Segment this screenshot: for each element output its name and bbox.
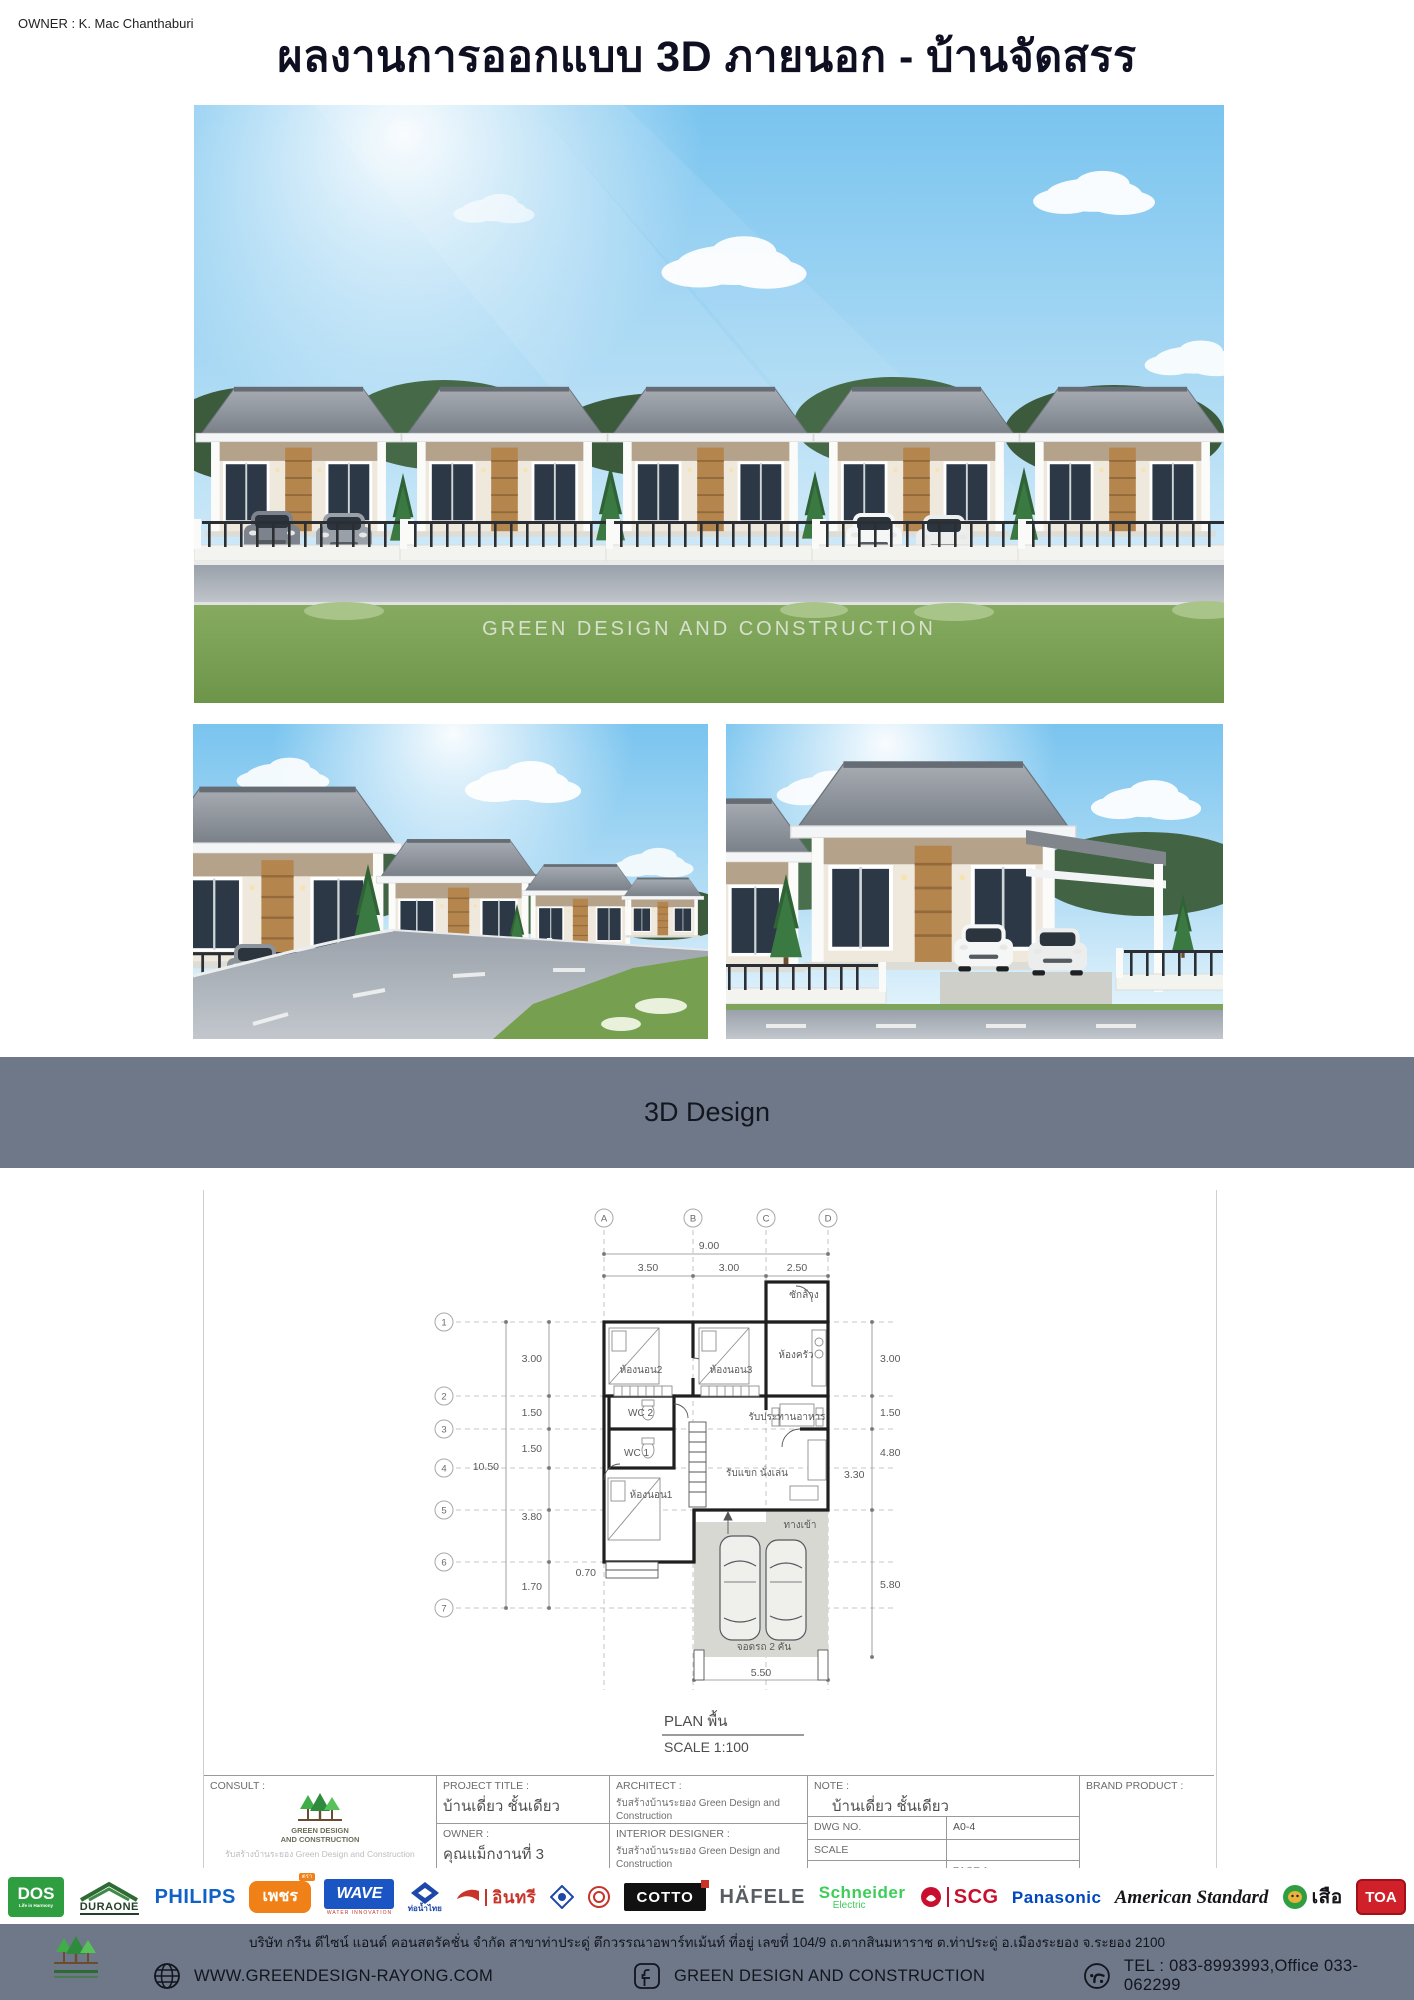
svg-text:ห้องนอน3: ห้องนอน3 — [710, 1364, 753, 1376]
logo-cotto-text: COTTO — [637, 1890, 694, 1905]
svg-text:3.30: 3.30 — [844, 1469, 865, 1481]
svg-text:5.50: 5.50 — [751, 1667, 772, 1679]
scale-label: SCALE — [814, 1844, 848, 1856]
architect-value: รับสร้างบ้านระยอง Green Design and Const… — [616, 1796, 801, 1822]
plan-scale-caption: SCALE 1:100 — [664, 1739, 749, 1755]
svg-text:1.50: 1.50 — [522, 1443, 543, 1455]
main-render-image: GREEN DESIGN AND CONSTRUCTION — [194, 105, 1224, 703]
project-title-cell: PROJECT TITLE : บ้านเดี่ยว ชั้นเดียว — [436, 1776, 609, 1823]
logo-suea: เสือ — [1282, 1884, 1343, 1910]
svg-text:1.50: 1.50 — [522, 1407, 543, 1419]
consult-cell: CONSULT : GREEN DESIGN AND CONSTRUCTION … — [204, 1776, 436, 1868]
svg-text:C: C — [763, 1214, 770, 1225]
logo-emblem-diamond — [550, 1885, 574, 1909]
logo-toa-text: TOA — [1365, 1890, 1396, 1905]
globe-icon — [152, 1961, 182, 1991]
logo-petch: ตรา เพชร — [249, 1881, 311, 1913]
note-value: บ้านเดี่ยว ชั้นเดียว — [832, 1794, 1073, 1818]
logo-text-line2: AND CONSTRUCTION — [210, 1835, 430, 1844]
note-label: NOTE : — [814, 1780, 849, 1792]
svg-text:3.00: 3.00 — [880, 1353, 901, 1365]
svg-text:รับประทานอาหาร: รับประทานอาหาร — [748, 1412, 826, 1423]
logo-emblem-circle — [587, 1885, 611, 1909]
footer-tel-text: TEL : 083-8993993,Office 033-062299 — [1124, 1957, 1414, 1995]
svg-text:ห้องครัว: ห้องครัว — [778, 1349, 813, 1361]
brand-logos-row: DOS Life in Harmony DURAONE PHILIPS ตรา … — [8, 1874, 1406, 1920]
logo-schneider-text: Schneider — [819, 1884, 906, 1901]
logo-dura-one: DURAONE — [77, 1880, 141, 1915]
svg-text:จอดรถ 2 คัน: จอดรถ 2 คัน — [737, 1642, 792, 1653]
logo-hafele-text: HÄFELE — [719, 1887, 805, 1907]
logo-petch-text: เพชร — [262, 1889, 297, 1905]
consult-label: CONSULT : — [210, 1780, 265, 1792]
logo-text-line1: GREEN DESIGN — [210, 1826, 430, 1835]
logo-scg-text: SCG — [947, 1887, 999, 1907]
note-cell: NOTE : บ้านเดี่ยว ชั้นเดียว — [807, 1776, 1079, 1816]
architect-cell: ARCHITECT : รับสร้างบ้านระยอง Green Desi… — [609, 1776, 807, 1823]
svg-text:3.80: 3.80 — [522, 1511, 543, 1523]
logo-subtext: รับสร้างบ้านระยอง Green Design and Const… — [210, 1847, 430, 1861]
insee-eagle-icon — [455, 1887, 481, 1907]
svg-text:ทางเข้า: ทางเข้า — [784, 1519, 817, 1531]
watermark-text: GREEN DESIGN AND CONSTRUCTION — [482, 618, 936, 640]
svg-text:1.50: 1.50 — [880, 1407, 901, 1419]
svg-text:ซักล้าง: ซักล้าง — [789, 1289, 819, 1301]
thai-pipe-diamond-icon — [410, 1881, 440, 1905]
footer-website-text: WWW.GREENDESIGN-RAYONG.COM — [194, 1967, 493, 1986]
brand-product-label: BRAND PRODUCT : — [1086, 1780, 1183, 1792]
dwg-label: DWG NO. — [814, 1821, 861, 1833]
svg-text:0.70: 0.70 — [576, 1567, 597, 1579]
banner-label: 3D Design — [0, 1057, 1414, 1168]
logo-panasonic-text: Panasonic — [1012, 1889, 1102, 1906]
footer: บริษัท กรีน ดีไซน์ แอนด์ คอนสตรัคชั่น จำ… — [0, 1924, 1414, 2000]
logo-dos: DOS Life in Harmony — [8, 1877, 64, 1917]
logo-suea-text: เสือ — [1312, 1888, 1343, 1907]
page-label-cell — [807, 1860, 946, 1868]
owner-cell: OWNER : คุณแม็กงานที่ 3 — [436, 1823, 609, 1868]
scale-label-cell: SCALE — [807, 1839, 946, 1860]
footer-facebook-text: GREEN DESIGN AND CONSTRUCTION — [674, 1967, 985, 1986]
footer-facebook[interactable]: GREEN DESIGN AND CONSTRUCTION — [632, 1958, 985, 1994]
svg-text:D: D — [825, 1214, 832, 1225]
logo-thai-pipe-text: ท่อน้ำไทย — [408, 1905, 442, 1913]
svg-text:5.80: 5.80 — [880, 1579, 901, 1591]
footer-website[interactable]: WWW.GREENDESIGN-RAYONG.COM — [152, 1958, 493, 1994]
scg-emblem-icon — [919, 1885, 943, 1909]
svg-text:3: 3 — [441, 1425, 446, 1436]
svg-text:5: 5 — [441, 1506, 446, 1517]
logo-philips-text: PHILIPS — [155, 1887, 236, 1907]
house-closeup-render — [726, 724, 1223, 1039]
svg-text:WC 1: WC 1 — [624, 1448, 649, 1459]
page-value-cell: PAGE 1 — [946, 1860, 1079, 1868]
logo-cotto: COTTO — [624, 1883, 706, 1911]
footer-phone[interactable]: TEL : 083-8993993,Office 033-062299 — [1082, 1958, 1414, 1994]
logo-dura-one-text: DURAONE — [80, 1902, 139, 1915]
logo-petch-sub: ตรา — [299, 1873, 316, 1881]
grid-column-bubbles: A B C D — [595, 1209, 837, 1227]
logo-insee: อินทรี — [455, 1887, 536, 1907]
interior-value: รับสร้างบ้านระยอง Green Design and Const… — [616, 1844, 801, 1868]
logo-philips: PHILIPS — [155, 1887, 236, 1907]
title-block: CONSULT : GREEN DESIGN AND CONSTRUCTION … — [204, 1775, 1214, 1868]
svg-text:ห้องนอน2: ห้องนอน2 — [620, 1364, 663, 1376]
tiger-emblem-icon — [1282, 1884, 1308, 1910]
floor-plan-sheet: A B C D 1 2 3 4 5 6 7 9.00 3.50 3.00 2.5… — [203, 1190, 1217, 1868]
svg-text:1: 1 — [441, 1318, 446, 1329]
interior-cell: INTERIOR DESIGNER : รับสร้างบ้านระยอง Gr… — [609, 1823, 807, 1868]
logo-american-standard-text: American Standard — [1115, 1888, 1269, 1907]
svg-text:4.80: 4.80 — [880, 1447, 901, 1459]
brand-product-cell: BRAND PRODUCT : — [1079, 1776, 1214, 1868]
svg-text:WC 2: WC 2 — [628, 1408, 653, 1419]
svg-text:4: 4 — [441, 1464, 446, 1475]
page-title: ผลงานการออกแบบ 3D ภายนอก - บ้านจัดสรร — [0, 22, 1414, 90]
company-tree-logo-icon — [294, 1793, 346, 1823]
logo-toa: TOA — [1356, 1879, 1406, 1915]
houses-street-illustration: GREEN DESIGN AND CONSTRUCTION — [194, 105, 1224, 703]
svg-text:7: 7 — [441, 1604, 446, 1615]
cotto-red-dot — [701, 1880, 709, 1888]
logo-insee-text: อินทรี — [485, 1889, 536, 1906]
project-title-label: PROJECT TITLE : — [443, 1780, 529, 1792]
logo-american-standard: American Standard — [1115, 1888, 1269, 1907]
street-perspective-render — [193, 724, 708, 1039]
circle-emblem-icon — [587, 1885, 611, 1909]
svg-text:1.70: 1.70 — [522, 1581, 543, 1593]
svg-text:9.00: 9.00 — [699, 1240, 720, 1252]
grid-row-bubbles: 1 2 3 4 5 6 7 — [435, 1313, 453, 1617]
dwg-value-cell: A0-4 — [946, 1816, 1079, 1839]
plan-caption: PLAN พื้น — [664, 1710, 728, 1730]
logo-dos-text: DOS — [18, 1885, 55, 1902]
section-banner: 3D Design — [0, 1057, 1414, 1168]
logo-schneider: Schneider Electric — [819, 1884, 906, 1911]
logo-panasonic: Panasonic — [1012, 1889, 1102, 1906]
svg-text:ห้องนอน1: ห้องนอน1 — [630, 1489, 673, 1501]
svg-text:2.50: 2.50 — [787, 1262, 808, 1274]
phone-icon — [1082, 1961, 1112, 1991]
owner-cell-value: คุณแม็กงานที่ 3 — [443, 1842, 603, 1866]
svg-text:3.00: 3.00 — [719, 1262, 740, 1274]
dwg-value: A0-4 — [953, 1821, 975, 1833]
svg-text:3.50: 3.50 — [638, 1262, 659, 1274]
dura-one-roof-icon — [77, 1880, 141, 1902]
logo-dos-sub: Life in Harmony — [19, 1904, 53, 1909]
svg-text:10.50: 10.50 — [473, 1461, 499, 1473]
floor-plan-drawing: A B C D 1 2 3 4 5 6 7 9.00 3.50 3.00 2.5… — [204, 1190, 1216, 1775]
svg-text:3.00: 3.00 — [522, 1353, 543, 1365]
footer-address: บริษัท กรีน ดีไซน์ แอนด์ คอนสตรัคชั่น จำ… — [0, 1931, 1414, 1953]
svg-text:รับแขก นั่งเล่น: รับแขก นั่งเล่น — [726, 1465, 788, 1479]
project-title-value: บ้านเดี่ยว ชั้นเดียว — [443, 1794, 603, 1818]
architect-label: ARCHITECT : — [616, 1780, 682, 1792]
svg-text:6: 6 — [441, 1558, 446, 1569]
page-partial-value: PAGE 1 — [953, 1866, 988, 1868]
facebook-icon — [632, 1961, 662, 1991]
scale-value-cell — [946, 1839, 1079, 1860]
svg-text:2: 2 — [441, 1392, 446, 1403]
svg-text:A: A — [601, 1214, 608, 1225]
logo-wave: WAVE WATER INNOVATION — [324, 1879, 394, 1916]
logo-wave-text: WAVE — [337, 1886, 383, 1902]
logo-wave-sub: WATER INNOVATION — [327, 1911, 392, 1916]
logo-scg: SCG — [919, 1885, 999, 1909]
interior-label: INTERIOR DESIGNER : — [616, 1828, 730, 1840]
logo-thai-pipe: ท่อน้ำไทย — [408, 1881, 442, 1913]
svg-text:B: B — [690, 1214, 696, 1225]
diamond-emblem-icon — [550, 1885, 574, 1909]
owner-cell-label: OWNER : — [443, 1828, 489, 1840]
logo-hafele: HÄFELE — [719, 1887, 805, 1907]
logo-schneider-sub: Electric — [833, 1901, 866, 1911]
dwg-label-cell: DWG NO. — [807, 1816, 946, 1839]
